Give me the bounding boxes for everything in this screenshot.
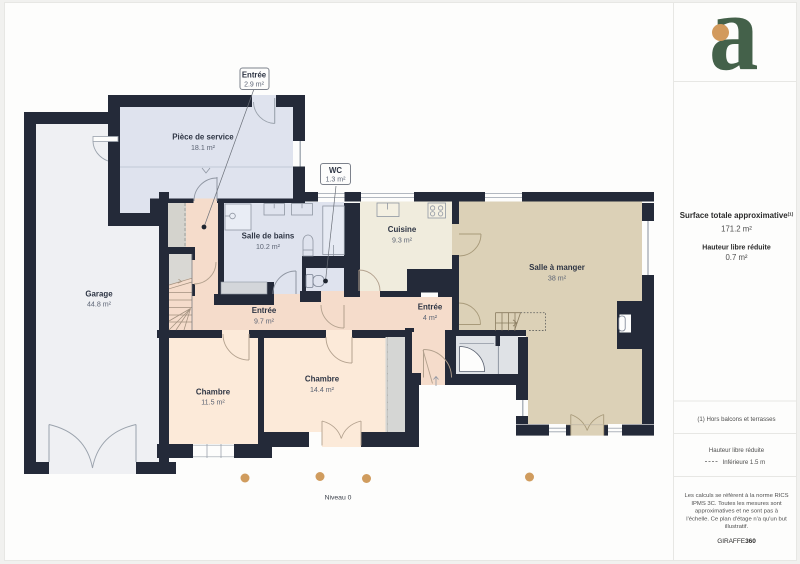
svg-text:Chambre: Chambre (196, 388, 231, 397)
svg-text:Hauteur libre réduite: Hauteur libre réduite (702, 245, 771, 252)
svg-text:Chambre: Chambre (305, 375, 340, 384)
svg-text:4 m²: 4 m² (423, 314, 438, 322)
svg-text:Entrée: Entrée (252, 306, 277, 315)
svg-text:GIRAFFE360: GIRAFFE360 (717, 538, 756, 545)
svg-text:approximatives et ne sont pas: approximatives et ne sont pas à (695, 509, 779, 515)
svg-text:WC: WC (329, 166, 342, 175)
svg-text:illustratif.: illustratif. (725, 524, 749, 530)
svg-text:10.2 m²: 10.2 m² (256, 243, 281, 251)
svg-text:9.7 m²: 9.7 m² (254, 318, 275, 326)
svg-text:14.4 m²: 14.4 m² (310, 386, 335, 394)
svg-text:171.2 m²: 171.2 m² (721, 225, 752, 234)
svg-text:(1) Hors balcons et terrasses: (1) Hors balcons et terrasses (697, 416, 775, 423)
svg-text:0.7 m²: 0.7 m² (725, 253, 747, 262)
svg-text:38 m²: 38 m² (548, 275, 567, 283)
svg-text:Garage: Garage (85, 290, 113, 299)
svg-text:a: a (709, 0, 759, 93)
svg-text:44.8 m²: 44.8 m² (87, 301, 112, 309)
svg-text:18.1 m²: 18.1 m² (191, 144, 216, 152)
svg-text:Entrée: Entrée (242, 71, 267, 80)
svg-text:Salle à manger: Salle à manger (529, 263, 585, 272)
svg-text:9.3 m²: 9.3 m² (392, 237, 413, 245)
svg-text:l'échelle. Ce plan d'étage n'a: l'échelle. Ce plan d'étage n'a qu'un but (686, 516, 787, 522)
svg-text:2.9 m²: 2.9 m² (244, 82, 265, 89)
svg-text:Les calculs se réfèrent à la n: Les calculs se réfèrent à la norme RICS (684, 493, 788, 499)
svg-text:Surface totale approximative(1: Surface totale approximative(1) (680, 211, 794, 220)
svg-text:Hauteur libre réduite: Hauteur libre réduite (709, 447, 765, 454)
svg-text:Entrée: Entrée (418, 303, 443, 312)
svg-text:Pièce de service: Pièce de service (172, 133, 234, 142)
svg-text:Niveau 0: Niveau 0 (325, 495, 352, 502)
svg-text:Salle de bains: Salle de bains (242, 232, 295, 241)
svg-text:Inférieure 1.5 m: Inférieure 1.5 m (723, 459, 766, 466)
svg-text:1.3 m²: 1.3 m² (326, 177, 347, 184)
svg-text:Cuisine: Cuisine (388, 225, 417, 234)
svg-text:11.5 m²: 11.5 m² (201, 399, 225, 407)
svg-text:IPMS 3C. Toutes les mesures so: IPMS 3C. Toutes les mesures sont (691, 501, 782, 507)
